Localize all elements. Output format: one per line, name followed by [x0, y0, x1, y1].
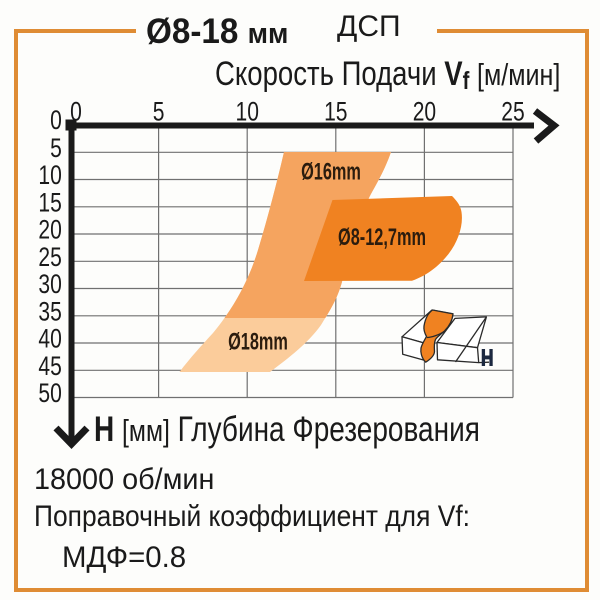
svg-text:45: 45: [38, 351, 61, 381]
svg-text:10: 10: [38, 161, 61, 191]
svg-text:5: 5: [50, 133, 62, 163]
svg-text:15: 15: [324, 97, 347, 127]
svg-text:20: 20: [413, 97, 436, 127]
svg-text:15: 15: [38, 188, 61, 218]
svg-text:10: 10: [235, 97, 258, 127]
svg-text:50: 50: [38, 379, 61, 409]
svg-text:Ø8-12,7mm: Ø8-12,7mm: [338, 224, 426, 251]
svg-text:0: 0: [50, 106, 62, 136]
svg-text:5: 5: [153, 97, 165, 127]
svg-text:Ø16mm: Ø16mm: [301, 158, 361, 185]
svg-text:40: 40: [38, 324, 61, 354]
svg-text:25: 25: [38, 242, 61, 272]
svg-text:Ø18mm: Ø18mm: [228, 328, 288, 355]
svg-text:35: 35: [38, 297, 61, 327]
svg-text:25: 25: [501, 97, 524, 127]
svg-text:20: 20: [38, 215, 61, 245]
svg-text:0: 0: [70, 97, 82, 127]
svg-text:H: H: [481, 346, 493, 371]
svg-text:30: 30: [38, 270, 61, 300]
